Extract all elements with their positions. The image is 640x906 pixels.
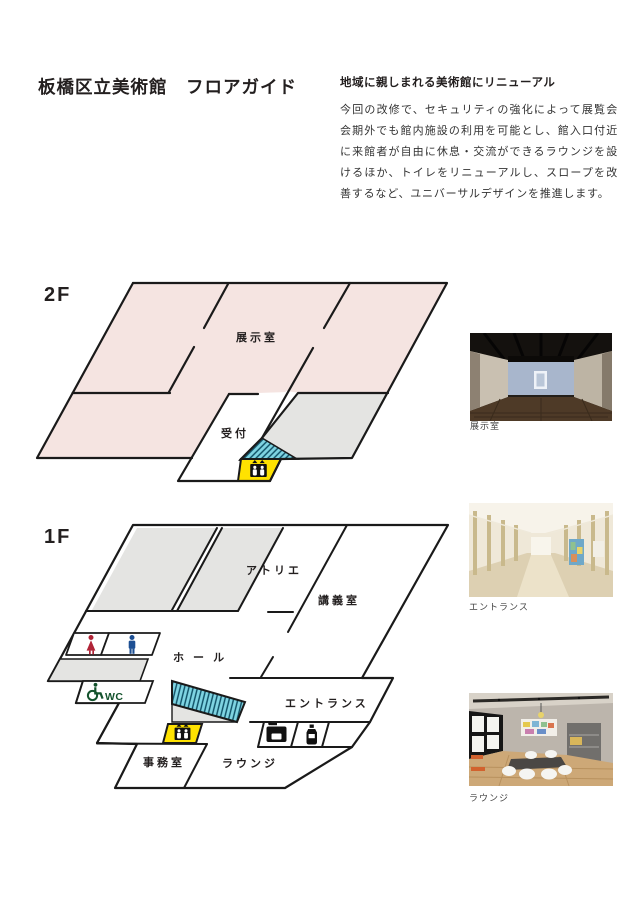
photo-entrance: [469, 503, 613, 597]
corridor-strip: [48, 659, 148, 681]
floor-plan-1f: 1F: [44, 525, 448, 788]
photo-caption-entrance: エントランス: [469, 600, 529, 613]
room-label-exhibit: 展示室: [235, 330, 278, 344]
toilet-boxes: [66, 633, 160, 655]
photo-caption-exhibit: 展示室: [470, 419, 500, 432]
photo-caption-lounge: ラウンジ: [469, 791, 509, 804]
room-label-lounge: ラウンジ: [222, 757, 278, 770]
room-label-atelier: アトリエ: [246, 564, 302, 577]
room-label-office: 事務室: [143, 755, 185, 769]
photo-lounge: [469, 693, 613, 786]
photo-entrance-image: [469, 503, 613, 597]
room-label-lecture: 講義室: [318, 593, 360, 607]
photo-exhibit-room-image: [470, 333, 612, 421]
photo-lounge-image: [469, 693, 613, 786]
wc-label: WC: [105, 691, 124, 703]
floor-label-2f: 2F: [44, 284, 71, 306]
floor-guide-page: 板橋区立美術館 フロアガイド 地域に親しまれる美術館にリニューアル 今回の改修で…: [0, 0, 640, 906]
room-label-hall: ホ ー ル: [173, 651, 227, 664]
room-label-reception: 受付: [221, 426, 249, 440]
floor-label-1f: 1F: [44, 526, 71, 548]
room-label-entrance: エントランス: [285, 697, 369, 710]
floor-plan-2f: 2F 展示室 受付: [37, 283, 447, 481]
photo-exhibit-room: [470, 333, 612, 421]
